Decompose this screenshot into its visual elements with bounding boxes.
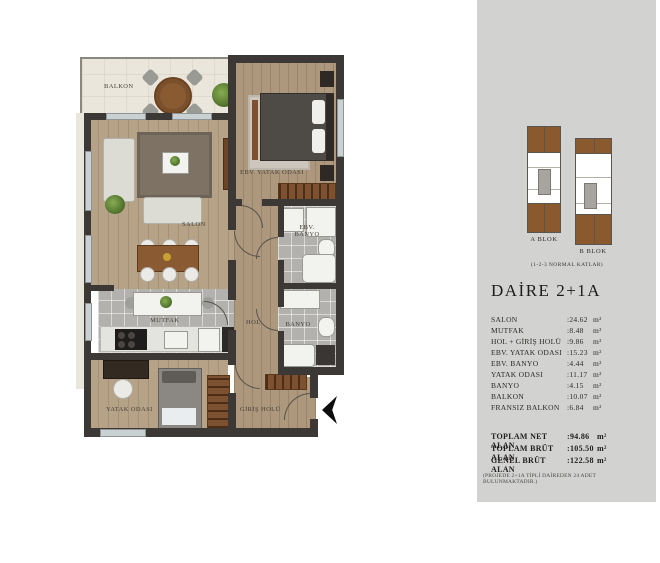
window [100,429,146,437]
window [85,151,92,211]
wall [278,331,284,367]
label-master-bath: EBV. BANYO [282,224,332,238]
block-core [538,169,551,195]
wall [88,353,234,360]
nightstand [320,165,334,181]
entrance-arrow-icon [322,396,337,424]
key-plan-a-blok [527,126,561,233]
room-area-row: HOL + GİRİŞ HOLÜ:9.86m² [491,337,649,348]
room-area-row: EBV. YATAK ODASI:15.23m² [491,348,649,359]
shoe-cabinet [265,374,307,390]
block-core [584,183,597,209]
bed-bench [252,100,258,160]
footnote: (PROJEDE 2+1A TİPLİ DAİREDEN 24 ADET BUL… [483,473,633,485]
wall [228,55,236,205]
dining-chair [184,267,199,282]
wall [310,419,318,429]
wall [310,370,318,398]
wardrobe [207,375,230,429]
key-plan-b-blok [575,138,612,245]
kitchen-appliance [198,328,220,352]
wall [88,285,114,291]
island-plant [160,296,172,308]
label-entry-hall: GİRİŞ HOLÜ [240,406,281,413]
wall [278,283,344,289]
stove [115,329,147,350]
label-bath: BANYO [274,321,322,328]
pillow [312,100,325,124]
block-section [528,127,560,153]
sofa [103,138,135,202]
label-hall: HOL [246,319,261,326]
room-area-row: BANYO:4.15m² [491,381,649,392]
room-area-row: EBV. BANYO:4.44m² [491,359,649,370]
block-section [576,139,611,154]
floor-plan: BALKON SALON EBV. YATAK ODASI EBV. BANYO… [76,55,344,437]
wall [262,199,336,206]
wall [228,260,236,289]
desk [103,360,149,379]
window [337,99,344,157]
bath-sink [280,290,320,309]
wall [228,55,344,63]
dining-chair [140,267,155,282]
totals-list: TOPLAM NET ALAN:94.86m² TOPLAM BRÜT ALAN… [491,432,649,468]
room-area-row: FRANSIZ BALKON:6.84m² [491,403,649,414]
living-plant [105,195,125,214]
room-areas-list: SALON:24.62m² MUTFAK:8.48m² HOL + GİRİŞ … [491,315,649,414]
label-balcony: BALKON [104,83,133,90]
master-tub [302,254,336,283]
page-title: DAİRE 2+1A [491,281,601,301]
label-bedroom: YATAK ODASI [106,406,153,413]
block-section [528,203,560,232]
pillow [162,371,196,383]
master-bed [260,93,334,161]
wall [228,289,236,300]
room-area-row: MUTFAK:8.48m² [491,326,649,337]
headboard [326,94,333,160]
balcony-round-table [154,77,192,115]
room-area-row: YATAK ODASI:11.17m² [491,370,649,381]
label-master-bedroom: EBV. YATAK ODASI [240,169,304,176]
total-row: GENEL BRÜT ALAN:122.58m² [491,456,649,468]
bathtub [279,344,315,367]
sofa-2 [143,197,202,224]
balcony-door-window [106,113,146,120]
desk-chair [113,379,133,399]
bath-cabinet [316,345,335,365]
floors-note: (1-2-3 NORMAL KATLAR) [487,262,647,268]
room-area-row: SALON:24.62m² [491,315,649,326]
a-blok-label: A BLOK [517,236,571,243]
info-panel: A BLOK B BLOK (1-2-3 NORMAL KATLAR) DAİR… [477,0,656,502]
wall [228,393,236,428]
wall [228,205,236,230]
b-blok-label: B BLOK [566,248,620,255]
block-section [576,214,611,244]
coffee-table-plant [170,156,180,166]
dining-centerpiece [163,253,171,261]
window [85,235,92,283]
label-living: SALON [182,221,206,228]
kitchen-sink [164,331,188,349]
total-row: TOPLAM NET ALAN:94.86m² [491,432,649,444]
pillow [312,129,325,153]
balcony-door-window [172,113,212,120]
bed-sheet [162,408,196,425]
bed [158,368,202,429]
total-row: TOPLAM BRÜT ALAN:105.50m² [491,444,649,456]
label-kitchen: MUTFAK [150,317,179,324]
dining-chair [162,267,177,282]
window [85,303,92,341]
brochure-page: BALKON SALON EBV. YATAK ODASI EBV. BANYO… [0,0,660,563]
nightstand [320,71,334,87]
wall [234,199,242,206]
room-area-row: BALKON:10.07m² [491,392,649,403]
